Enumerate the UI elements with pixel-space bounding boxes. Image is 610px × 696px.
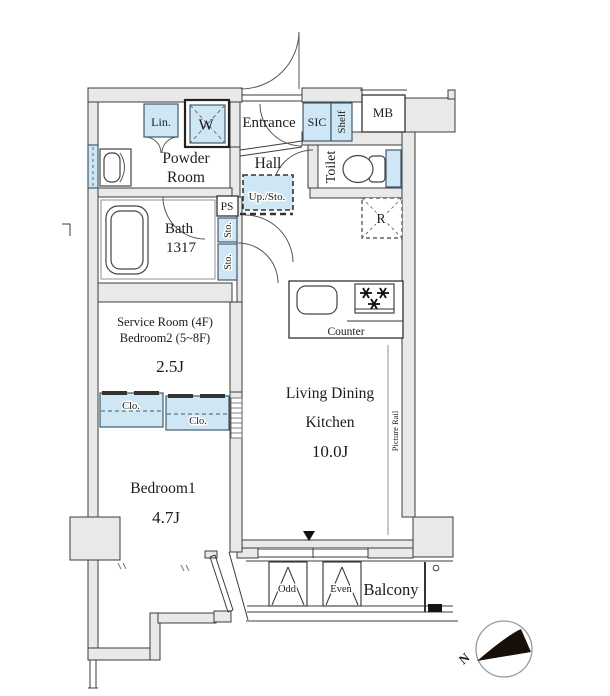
powder-room-label-1: Powder [162, 150, 210, 167]
bath-label: Bath [165, 221, 194, 237]
picture-rail-label: Picture Rail [390, 410, 400, 451]
compass [476, 621, 532, 677]
stove [355, 284, 394, 313]
counter-label: Counter [327, 326, 364, 338]
ldk-label-1: Living Dining [286, 385, 375, 402]
panel-even-label: Even [330, 584, 352, 595]
sto-upper-label: Sto. [223, 222, 234, 238]
vanity-sink [100, 149, 131, 186]
balcony-label: Balcony [364, 580, 420, 599]
sic-label: SIC [308, 115, 327, 129]
panel-odd-label: Odd [278, 584, 297, 595]
hall-label: Hall [255, 155, 282, 172]
bedroom1-label: Bedroom1 [130, 480, 195, 497]
fridge-label: R [376, 211, 385, 226]
closet-left-label: Clo. [122, 401, 140, 412]
service-room-label-2: Bedroom2 (5~8F) [120, 331, 210, 345]
service-room-area: 2.5J [156, 357, 184, 376]
floor-plan-svg: Lin. W Entrance SIC Shelf MB Powder Room… [0, 0, 610, 696]
bathtub-inner [111, 211, 143, 269]
closet-right-label: Clo. [189, 416, 207, 427]
toilet-tank [386, 150, 401, 187]
balcony-hatch-block [428, 604, 442, 612]
toilet-bowl [343, 156, 373, 183]
sliding-door-pocket [231, 398, 242, 438]
entrance-label: Entrance [242, 115, 296, 131]
ps-label: PS [221, 201, 234, 213]
linen-label: Lin. [151, 115, 171, 129]
toilet-label: Toilet [324, 151, 339, 184]
sto-lower-label: Sto. [223, 254, 234, 270]
kitchen-sink [297, 286, 337, 314]
ldk-label-2: Kitchen [305, 414, 354, 431]
shelf-label: Shelf [336, 110, 348, 134]
powder-window [88, 145, 98, 188]
bath-size-label: 1317 [166, 240, 197, 256]
ldk-area: 10.0J [312, 442, 349, 461]
up-sto-label: Up./Sto. [249, 191, 286, 203]
powder-room-label-2: Room [167, 169, 205, 186]
washer-label: W [198, 117, 214, 134]
bedroom1-area: 4.7J [152, 508, 180, 527]
meter-box-label: MB [373, 105, 394, 120]
floor-plan-page: Lin. W Entrance SIC Shelf MB Powder Room… [0, 0, 610, 696]
service-room-label-1: Service Room (4F) [117, 315, 213, 329]
balcony-drain [433, 565, 439, 571]
